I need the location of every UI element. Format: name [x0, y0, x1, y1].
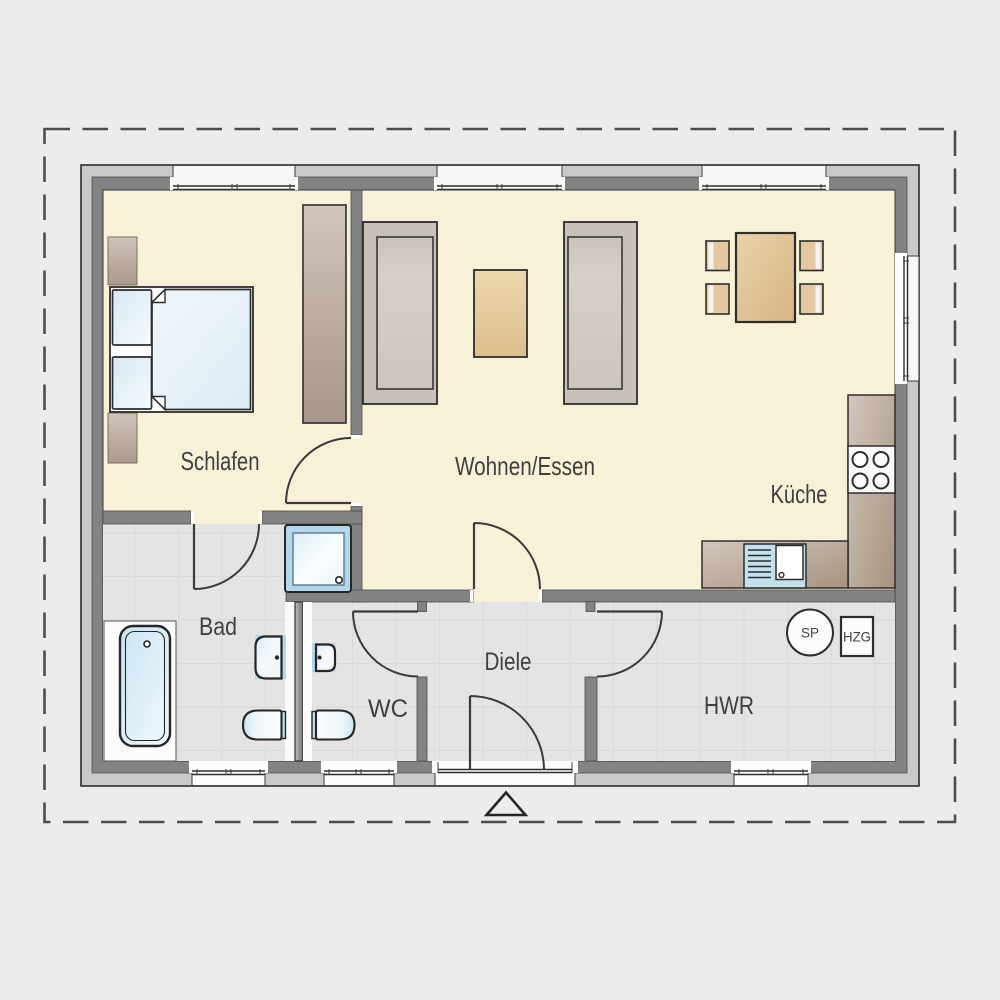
- svg-text:SP: SP: [801, 625, 819, 641]
- svg-text:Küche: Küche: [771, 479, 828, 509]
- svg-text:HWR: HWR: [704, 692, 754, 720]
- svg-text:WC: WC: [368, 695, 408, 723]
- svg-text:Diele: Diele: [485, 648, 532, 676]
- svg-text:Schlafen: Schlafen: [181, 446, 260, 476]
- svg-text:Bad: Bad: [199, 613, 237, 641]
- svg-text:Wohnen/Essen: Wohnen/Essen: [455, 451, 595, 481]
- svg-text:HZG: HZG: [843, 629, 871, 645]
